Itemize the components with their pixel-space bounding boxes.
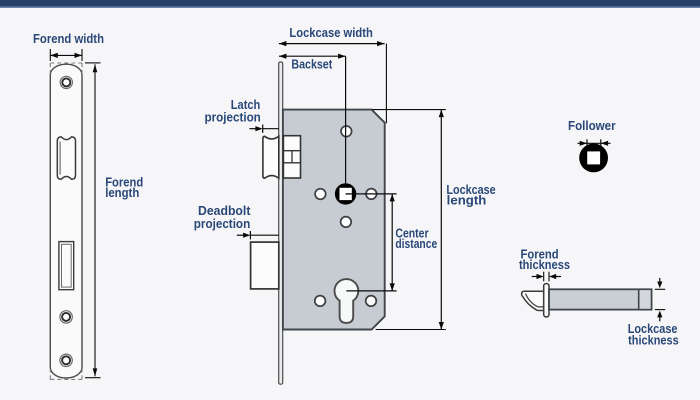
svg-text:thickness: thickness	[628, 333, 679, 348]
svg-text:Lockcase width: Lockcase width	[289, 25, 372, 40]
svg-text:length: length	[447, 192, 487, 207]
svg-text:Forend width: Forend width	[33, 31, 104, 46]
svg-text:length: length	[105, 185, 139, 200]
svg-text:projection: projection	[205, 110, 261, 125]
svg-text:Follower: Follower	[568, 118, 616, 133]
svg-text:projection: projection	[194, 216, 250, 231]
svg-text:Backset: Backset	[291, 57, 332, 72]
svg-text:distance: distance	[395, 236, 437, 251]
svg-text:thickness: thickness	[519, 257, 570, 272]
